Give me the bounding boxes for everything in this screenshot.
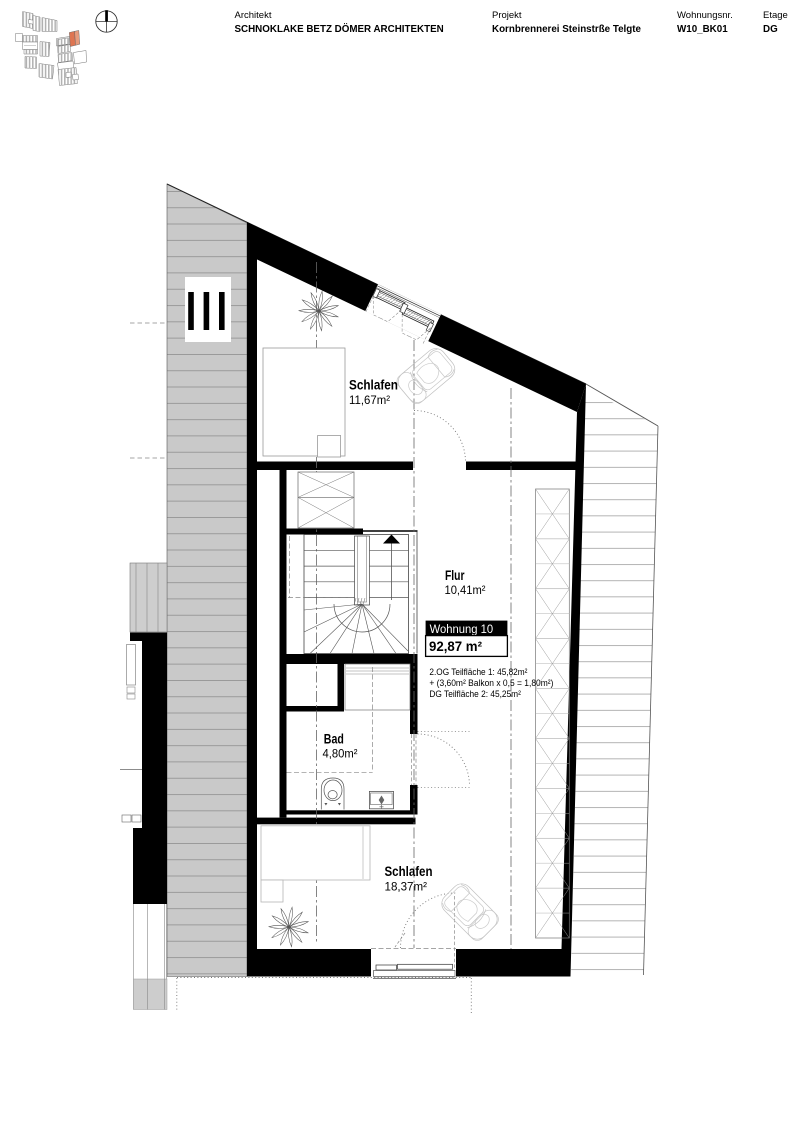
svg-text:Schlafen: Schlafen — [385, 864, 433, 879]
svg-text:DG Teilfläche 2: 45,25m²: DG Teilfläche 2: 45,25m² — [429, 689, 521, 700]
svg-text:10,41m²: 10,41m² — [445, 583, 486, 597]
svg-text:18,37m²: 18,37m² — [385, 880, 428, 894]
svg-text:Kornbrennerei Steinstrße Telgt: Kornbrennerei Steinstrße Telgte — [492, 24, 642, 35]
svg-text:Projekt: Projekt — [492, 10, 522, 21]
svg-text:Schlafen: Schlafen — [349, 378, 398, 393]
svg-text:4,80m²: 4,80m² — [323, 747, 358, 761]
svg-text:W10_BK01: W10_BK01 — [677, 24, 728, 35]
svg-text:SCHNOKLAKE BETZ DÖMER ARCHITEK: SCHNOKLAKE BETZ DÖMER ARCHITEKTEN — [235, 24, 444, 35]
svg-text:Etage: Etage — [763, 10, 788, 21]
svg-text:Wohnungsnr.: Wohnungsnr. — [677, 10, 733, 21]
svg-text:+ (3,60m² Balkon x 0,5 = 1,80m: + (3,60m² Balkon x 0,5 = 1,80m²) — [429, 678, 553, 689]
svg-text:Architekt: Architekt — [235, 10, 272, 21]
svg-text:92,87 m²: 92,87 m² — [429, 638, 482, 654]
svg-text:Bad: Bad — [324, 732, 344, 747]
svg-text:DG: DG — [763, 24, 778, 35]
svg-text:Wohnung 10: Wohnung 10 — [430, 622, 494, 636]
svg-text:Flur: Flur — [445, 568, 465, 583]
svg-text:11,67m²: 11,67m² — [349, 393, 390, 407]
svg-text:2.OG Teilfläche 1: 45,82m²: 2.OG Teilfläche 1: 45,82m² — [429, 667, 528, 678]
